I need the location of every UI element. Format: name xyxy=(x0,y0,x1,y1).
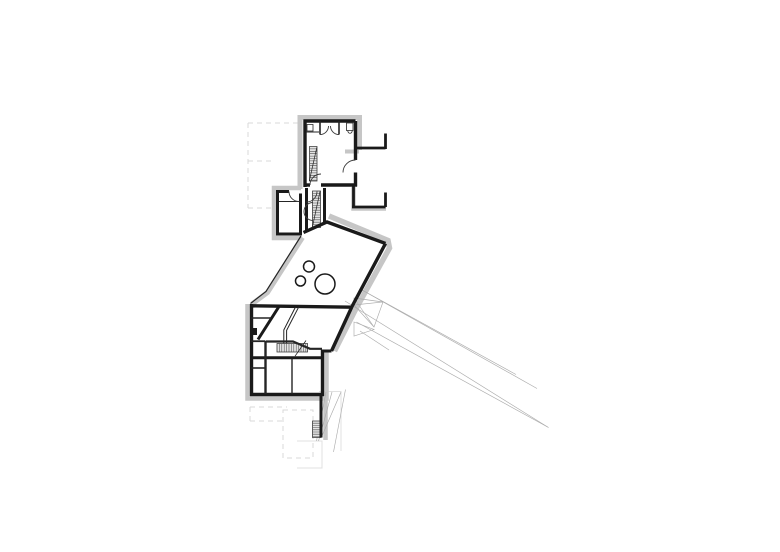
projection-lines-path xyxy=(357,322,549,428)
exterior-walls-path xyxy=(251,329,257,335)
projection-lines-path xyxy=(362,290,516,375)
door-swing-arcs-path xyxy=(289,192,299,202)
interior-partitions-path xyxy=(251,236,302,304)
insulation-bands-path xyxy=(354,187,387,209)
interior-partitions-path xyxy=(348,131,352,134)
projection-lines-path xyxy=(334,390,346,453)
door-swing-arcs-path xyxy=(331,126,340,135)
floor-plan-svg xyxy=(0,0,780,552)
hall-circles xyxy=(296,261,336,294)
hall-circle xyxy=(304,261,315,272)
floor-plan-page xyxy=(0,0,780,552)
dashed-setback-outlines-path xyxy=(283,410,313,458)
door-swing-arcs-path xyxy=(320,126,329,135)
faint-terrace-outline-path xyxy=(297,441,322,468)
interior-partitions-path xyxy=(347,123,354,131)
exterior-walls-path xyxy=(250,306,352,307)
projection-lines-path xyxy=(360,331,389,350)
interior-partitions-path xyxy=(307,125,313,132)
insulation-bands-path xyxy=(329,216,390,351)
insulation-bands-path xyxy=(252,238,303,305)
hall-circle xyxy=(315,274,335,294)
door-swing-arcs-path xyxy=(343,160,356,173)
hall-circle xyxy=(296,276,306,286)
projection-lines-path xyxy=(345,301,549,428)
exterior-walls-path xyxy=(258,307,279,340)
dashed-setback-outlines xyxy=(248,123,313,458)
